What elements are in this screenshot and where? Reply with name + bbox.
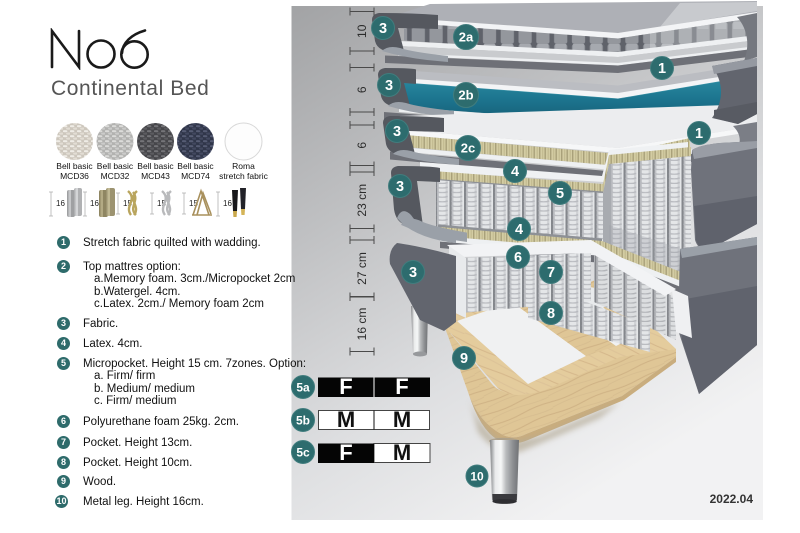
svg-text:27 cm: 27 cm — [355, 252, 369, 285]
svg-text:3: 3 — [393, 124, 401, 140]
svg-text:2a: 2a — [459, 30, 474, 45]
svg-text:5: 5 — [556, 186, 564, 202]
svg-text:6: 6 — [355, 142, 369, 149]
svg-text:8: 8 — [547, 306, 555, 322]
svg-text:6: 6 — [514, 250, 522, 266]
svg-text:5b: 5b — [296, 413, 310, 427]
svg-text:23 cm: 23 cm — [355, 184, 369, 217]
svg-text:3: 3 — [379, 21, 387, 37]
svg-text:3: 3 — [385, 78, 393, 94]
svg-text:M: M — [393, 440, 411, 465]
svg-text:F: F — [339, 374, 352, 399]
svg-text:10: 10 — [470, 469, 484, 483]
svg-text:6: 6 — [355, 86, 369, 93]
svg-text:5c: 5c — [296, 445, 310, 459]
svg-text:2b: 2b — [458, 88, 473, 103]
svg-text:7: 7 — [547, 265, 555, 281]
svg-text:4: 4 — [515, 222, 523, 238]
svg-text:2022.04: 2022.04 — [710, 492, 754, 506]
svg-text:2c: 2c — [461, 141, 475, 156]
svg-text:9: 9 — [460, 351, 468, 367]
svg-text:3: 3 — [396, 179, 404, 195]
svg-text:F: F — [339, 440, 352, 465]
svg-text:4: 4 — [511, 164, 519, 180]
svg-text:1: 1 — [695, 126, 703, 142]
svg-text:10: 10 — [355, 24, 369, 38]
svg-text:M: M — [393, 407, 411, 432]
svg-text:3: 3 — [409, 265, 417, 281]
svg-text:1: 1 — [658, 61, 666, 77]
svg-text:M: M — [337, 407, 355, 432]
svg-text:F: F — [395, 374, 408, 399]
svg-text:16 cm: 16 cm — [355, 308, 369, 341]
